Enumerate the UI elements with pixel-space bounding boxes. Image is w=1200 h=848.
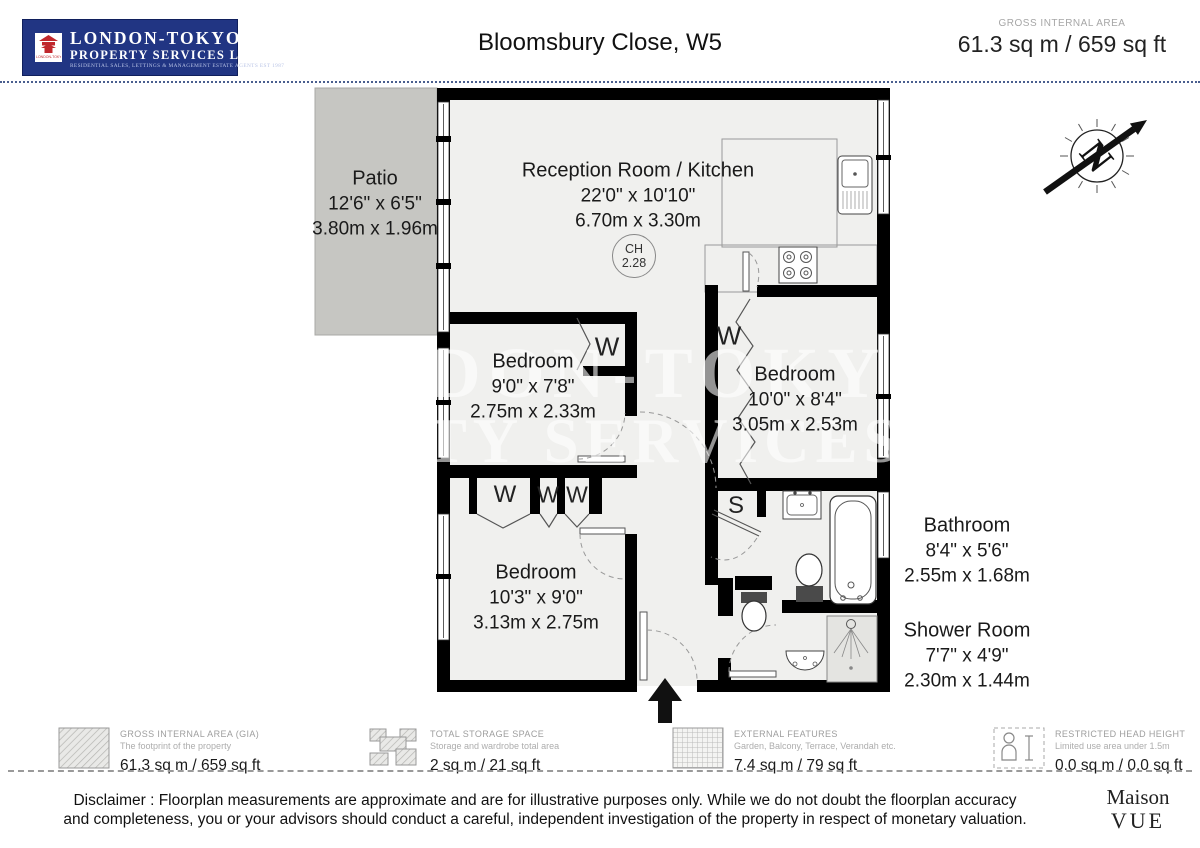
restricted-height-icon	[993, 727, 1045, 769]
legend-storage: TOTAL STORAGE SPACE Storage and wardrobe…	[368, 727, 559, 775]
storage-label: S	[728, 492, 744, 520]
bathroom-label: Bathroom 8'4" x 5'6" 2.55m x 1.68m	[904, 514, 1030, 589]
bathtub-icon	[830, 496, 876, 604]
compass-icon: N	[1045, 119, 1147, 193]
wardrobe-label: W	[717, 321, 742, 352]
bathroom-sink-icon	[783, 491, 821, 519]
shower-toilet-icon	[741, 592, 767, 631]
bedroom-mid-label: Bedroom 9'0" x 7'8" 2.75m x 2.33m	[470, 350, 596, 425]
legend-divider	[8, 770, 1192, 772]
bedroom-bottom-label: Bedroom 10'3" x 9'0" 3.13m x 2.75m	[473, 561, 599, 636]
ceiling-height-badge: CH 2.28	[612, 234, 656, 278]
external-features-icon	[672, 727, 724, 769]
legend-external: EXTERNAL FEATURES Garden, Balcony, Terra…	[672, 727, 896, 775]
wardrobe-label: W	[494, 481, 517, 509]
reception-label: Reception Room / Kitchen 22'0" x 10'10" …	[522, 159, 754, 234]
floorplan-page: LONDON-TOKYO LONDON-TOKYO PROPERTY SERVI…	[0, 0, 1200, 848]
disclaimer: Disclaimer : Floorplan measurements are …	[0, 792, 1090, 829]
kitchen-sink-icon	[838, 156, 872, 214]
legend-gia: GROSS INTERNAL AREA (GIA) The footprint …	[58, 727, 260, 775]
bathroom-toilet-icon	[796, 554, 823, 602]
floorplan-drawing: N	[0, 0, 1200, 848]
maison-vue-logo: Maison VUE	[1093, 786, 1183, 833]
gia-icon	[58, 727, 110, 769]
shower-room-label: Shower Room 7'7" x 4'9" 2.30m x 1.44m	[904, 619, 1031, 694]
wardrobe-label: W	[566, 482, 588, 509]
bedroom-right-label: Bedroom 10'0" x 8'4" 3.05m x 2.53m	[732, 363, 858, 438]
legend-restricted: RESTRICTED HEAD HEIGHT Limited use area …	[993, 727, 1185, 775]
storage-icon	[368, 727, 420, 769]
patio-label: Patio 12'6" x 6'5" 3.80m x 1.96m	[312, 167, 438, 242]
shower-icon	[827, 616, 877, 682]
wardrobe-label: W	[537, 482, 559, 509]
hob-icon	[779, 247, 817, 283]
wardrobe-label: W	[595, 332, 620, 363]
